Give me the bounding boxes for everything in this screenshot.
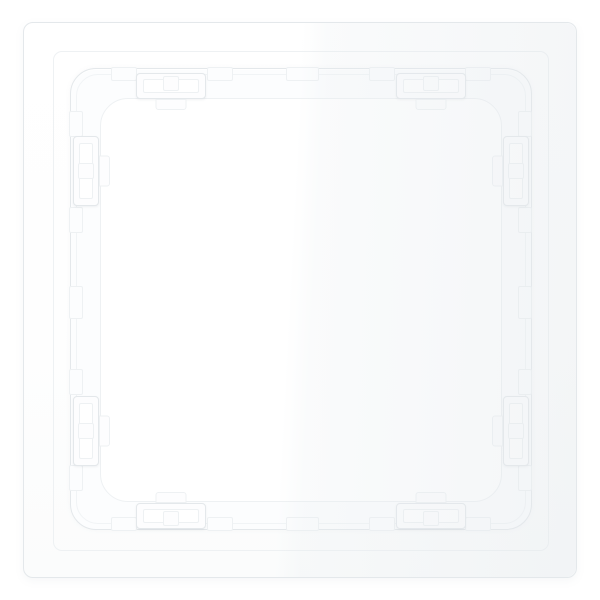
mounting-clip [136, 503, 206, 529]
clip-center-tab [423, 511, 439, 526]
product-photo-wall-frame [0, 0, 600, 600]
mounting-clip [73, 396, 99, 466]
ridge-notch [465, 67, 491, 81]
ridge-notch [207, 67, 233, 81]
ridge-notch [286, 517, 319, 531]
clip-latch [156, 99, 187, 110]
ridge-notch [111, 517, 137, 531]
clip-latch [99, 416, 110, 447]
mounting-clip [136, 73, 206, 99]
ridge-notch [518, 465, 532, 491]
ridge-notch [369, 517, 395, 531]
clip-latch [416, 99, 447, 110]
ridge-notch [518, 286, 532, 319]
clip-center-tab [508, 163, 524, 179]
ridge-notch [518, 207, 532, 233]
clip-center-tab [163, 511, 179, 526]
clip-center-tab [78, 423, 94, 439]
ridge-notch [518, 111, 532, 137]
ridge-notch [286, 67, 319, 81]
clip-latch [492, 156, 503, 187]
ridge-notch [69, 465, 83, 491]
ridge-notch [369, 67, 395, 81]
clip-latch [492, 416, 503, 447]
ridge-notch [69, 369, 83, 395]
clip-center-tab [163, 76, 179, 91]
mounting-clip [73, 136, 99, 206]
clip-center-tab [78, 163, 94, 179]
mounting-clip [396, 73, 466, 99]
ridge-notch [465, 517, 491, 531]
ridge-notch [69, 111, 83, 137]
ridge-notch [69, 286, 83, 319]
frame-outer-plate [23, 22, 577, 578]
ridge-notch [518, 369, 532, 395]
ridge-notch [207, 517, 233, 531]
clip-center-tab [423, 76, 439, 91]
clip-latch [99, 156, 110, 187]
clip-latch [416, 492, 447, 503]
ridge-notch [69, 207, 83, 233]
mounting-clip [396, 503, 466, 529]
clip-center-tab [508, 423, 524, 439]
ridge-notch [111, 67, 137, 81]
frame-aperture [100, 98, 502, 502]
mounting-clip [503, 136, 529, 206]
mounting-clip [503, 396, 529, 466]
clip-latch [156, 492, 187, 503]
